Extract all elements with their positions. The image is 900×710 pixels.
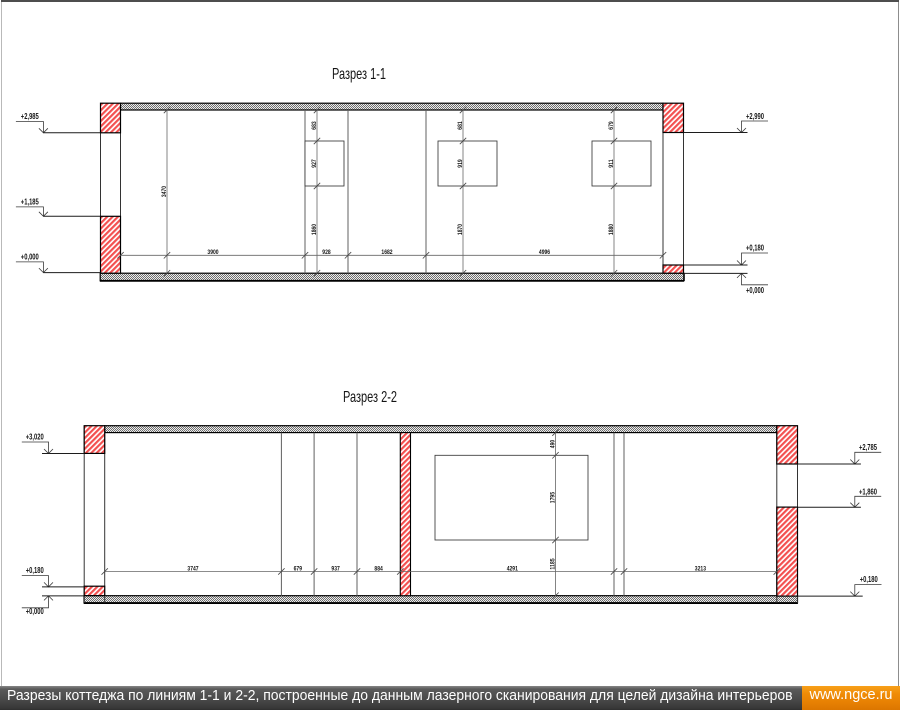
svg-text:1185: 1185	[549, 558, 556, 569]
svg-text:+0,000: +0,000	[21, 253, 39, 262]
svg-text:Разрез 2-2: Разрез 2-2	[343, 389, 397, 406]
svg-text:4291: 4291	[507, 565, 518, 572]
svg-text:+2,985: +2,985	[21, 112, 39, 121]
svg-text:490: 490	[549, 440, 556, 449]
svg-text:679: 679	[294, 565, 303, 572]
svg-text:683: 683	[311, 121, 318, 130]
svg-text:927: 927	[311, 159, 318, 168]
svg-text:+2,990: +2,990	[746, 112, 764, 121]
svg-text:+3,020: +3,020	[26, 433, 44, 442]
svg-text:1870: 1870	[457, 224, 464, 235]
svg-text:1860: 1860	[311, 224, 318, 235]
svg-text:+0,000: +0,000	[26, 607, 44, 616]
svg-text:928: 928	[322, 249, 331, 256]
svg-text:937: 937	[331, 565, 340, 572]
svg-text:1880: 1880	[608, 224, 615, 235]
svg-text:+2,785: +2,785	[859, 443, 877, 452]
svg-text:Разрез 1-1: Разрез 1-1	[332, 66, 386, 83]
svg-text:679: 679	[608, 121, 615, 130]
svg-text:+1,185: +1,185	[21, 198, 39, 207]
svg-text:884: 884	[374, 565, 383, 572]
svg-text:4996: 4996	[539, 249, 550, 256]
svg-text:3900: 3900	[207, 249, 218, 256]
svg-text:1795: 1795	[549, 492, 556, 503]
svg-text:3747: 3747	[187, 565, 198, 572]
svg-text:919: 919	[457, 159, 464, 168]
svg-text:+0,000: +0,000	[746, 286, 764, 295]
svg-text:1682: 1682	[381, 249, 392, 256]
svg-text:3470: 3470	[161, 186, 168, 197]
svg-text:+1,860: +1,860	[859, 487, 877, 496]
svg-text:681: 681	[457, 121, 464, 130]
svg-text:911: 911	[608, 159, 615, 168]
svg-text:+0,180: +0,180	[746, 244, 764, 253]
svg-text:3213: 3213	[695, 565, 706, 572]
svg-text:+0,180: +0,180	[26, 566, 44, 575]
svg-text:+0,180: +0,180	[860, 575, 878, 584]
